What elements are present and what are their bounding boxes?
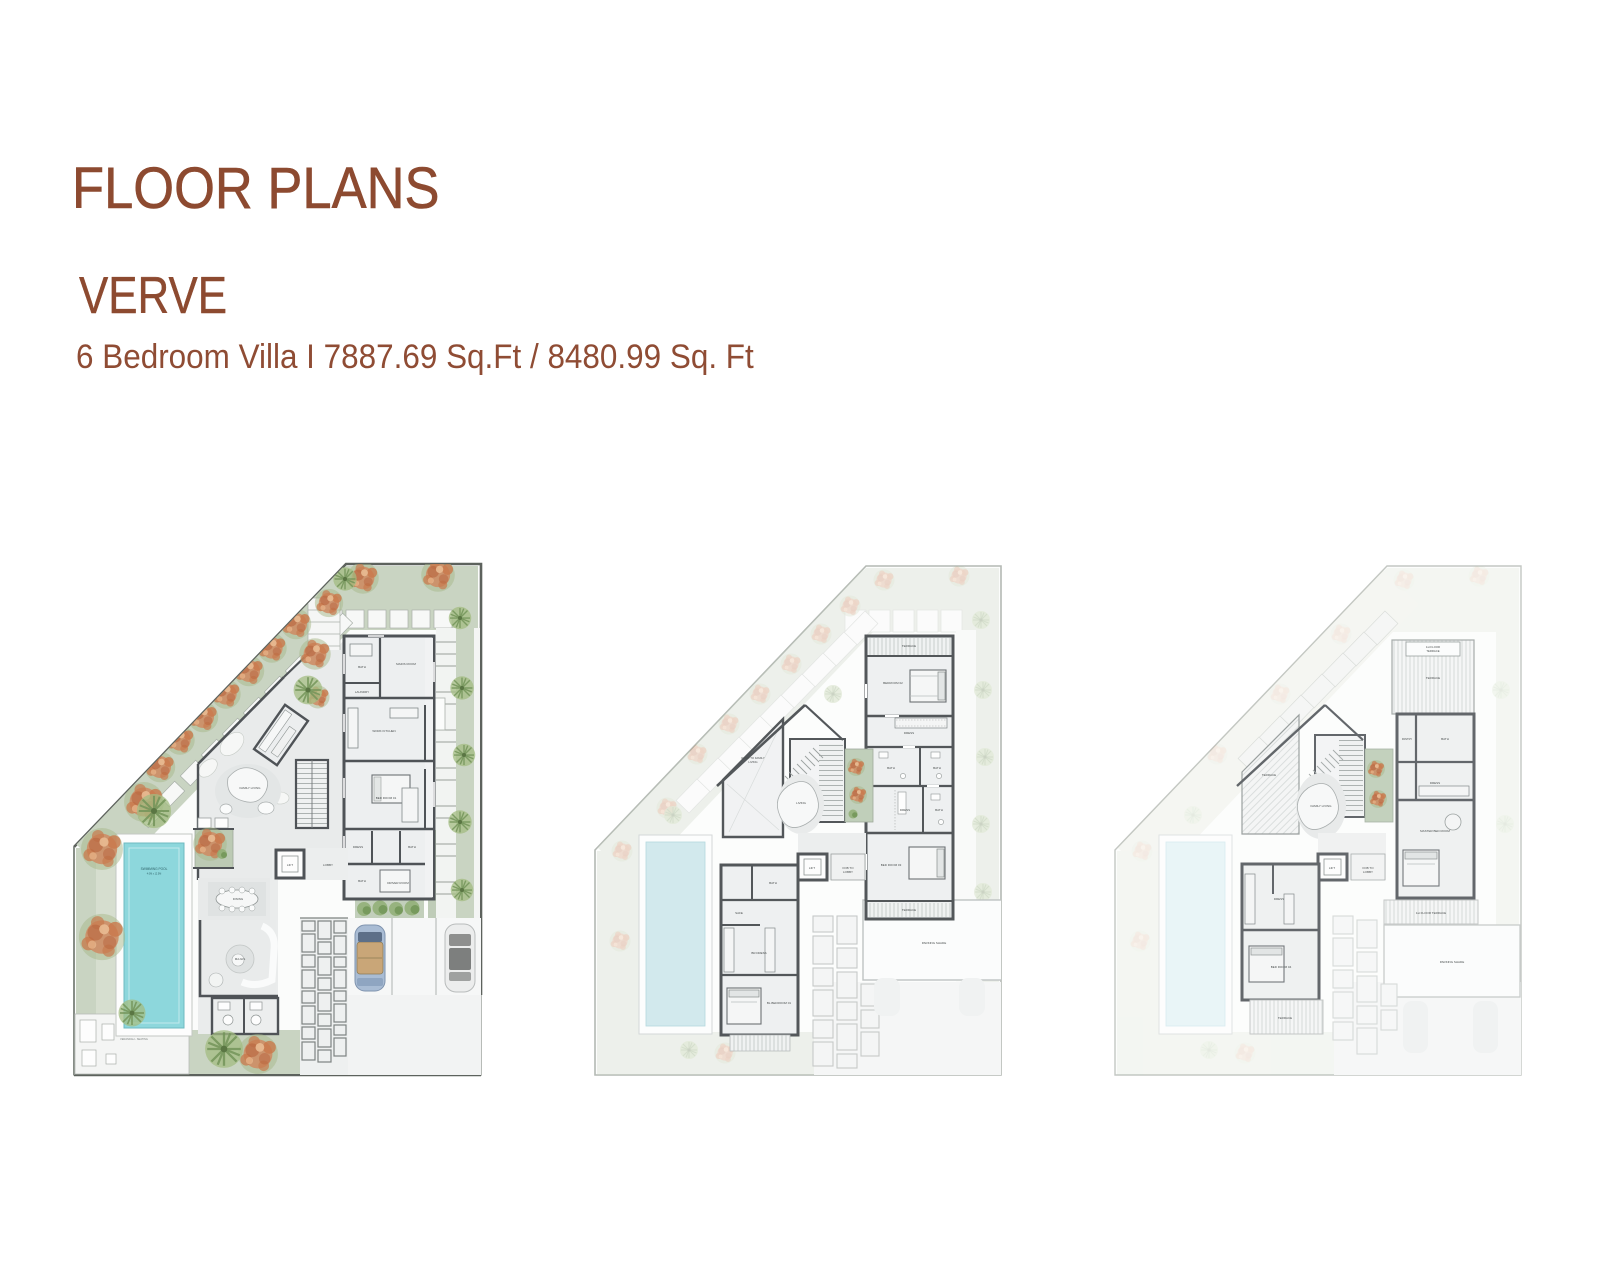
svg-text:LIFT: LIFT [809, 866, 815, 870]
svg-text:4.0M x 12.5M: 4.0M x 12.5M [147, 873, 161, 876]
svg-text:LOBBY: LOBBY [323, 863, 333, 867]
svg-text:FAMILY LIVING: FAMILY LIVING [239, 786, 261, 790]
svg-text:LIVING: LIVING [796, 801, 807, 805]
svg-text:PARKING SHADE: PARKING SHADE [922, 941, 946, 945]
svg-text:LOBBY: LOBBY [1363, 870, 1373, 874]
svg-text:BL.BEDROOM 01: BL.BEDROOM 01 [767, 1001, 792, 1005]
svg-text:MAJLIS: MAJLIS [235, 957, 246, 961]
svg-text:PARKING SHADE: PARKING SHADE [1440, 960, 1464, 964]
svg-text:VERANDAH - SEATING: VERANDAH - SEATING [120, 1037, 148, 1041]
svg-text:TERRACE: TERRACE [1426, 649, 1439, 653]
svg-text:BATH: BATH [358, 879, 366, 883]
svg-text:BR.DRESS: BR.DRESS [751, 951, 766, 955]
svg-text:BATH: BATH [1441, 737, 1449, 741]
svg-text:PANTRY: PANTRY [1402, 737, 1413, 741]
svg-text:BATH: BATH [408, 845, 416, 849]
svg-text:BATH: BATH [933, 766, 941, 770]
svg-text:BATH: BATH [935, 808, 943, 812]
svg-text:BEDROOM 02: BEDROOM 02 [883, 681, 903, 685]
svg-text:LIFT: LIFT [287, 863, 293, 867]
svg-text:DRESS: DRESS [1274, 897, 1284, 901]
svg-text:DINING: DINING [233, 897, 244, 901]
svg-text:BED ROOM 01: BED ROOM 01 [376, 796, 397, 800]
svg-text:SAFE: SAFE [735, 911, 743, 915]
svg-text:TERRACE: TERRACE [902, 644, 916, 648]
svg-text:1st FLOOR TERRACE: 1st FLOOR TERRACE [1416, 911, 1446, 915]
svg-text:DRESS: DRESS [904, 731, 914, 735]
svg-text:DRESS: DRESS [1430, 781, 1440, 785]
svg-text:BATH: BATH [358, 665, 366, 669]
svg-text:MASTER BED ROOM: MASTER BED ROOM [1420, 829, 1450, 833]
svg-text:LAUNDRY: LAUNDRY [355, 690, 369, 694]
svg-text:MAIDS ROOM: MAIDS ROOM [396, 662, 416, 666]
svg-text:FAMILY LIVING: FAMILY LIVING [1310, 804, 1332, 808]
svg-text:DRESS: DRESS [353, 845, 363, 849]
svg-text:TERRACE: TERRACE [1262, 773, 1276, 777]
svg-text:BATH: BATH [769, 881, 777, 885]
svg-text:LIVING: LIVING [748, 760, 757, 764]
svg-text:LOBBY: LOBBY [843, 870, 853, 874]
svg-text:BATH: BATH [887, 766, 895, 770]
svg-text:SWIMMING POOL: SWIMMING POOL [141, 867, 168, 871]
svg-text:LIFT: LIFT [1329, 866, 1335, 870]
svg-text:TERRACE: TERRACE [902, 908, 916, 912]
svg-text:WORK KITCHEN: WORK KITCHEN [372, 729, 395, 733]
svg-text:DRESS: DRESS [900, 808, 910, 812]
svg-text:BED ROOM 03: BED ROOM 03 [881, 863, 902, 867]
svg-text:TERRACE: TERRACE [1426, 676, 1440, 680]
svg-text:TERRACE: TERRACE [1278, 1016, 1292, 1020]
svg-text:BED ROOM 04: BED ROOM 04 [1271, 965, 1292, 969]
svg-text:DRIVER ROOM: DRIVER ROOM [387, 881, 409, 885]
